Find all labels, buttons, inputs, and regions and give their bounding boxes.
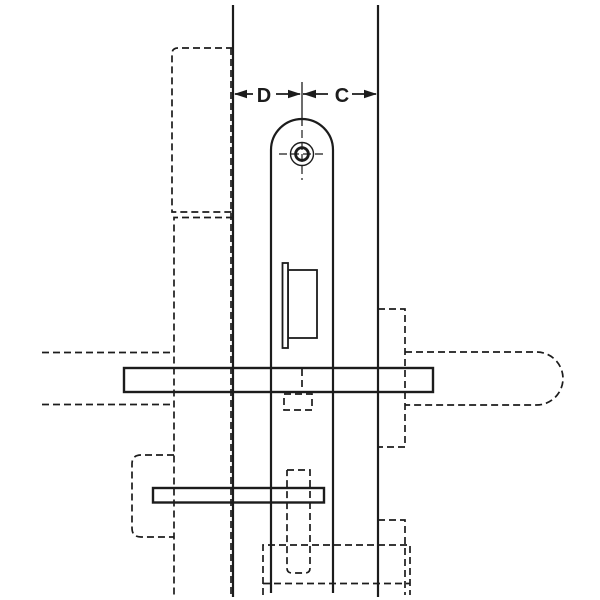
- arrow-right-icon: [364, 90, 377, 98]
- strike-box-right: [378, 309, 405, 447]
- lock-case-bottom: [263, 545, 410, 595]
- drawing-svg: D C: [0, 0, 600, 600]
- dimension-label-d: D: [257, 85, 271, 107]
- latch-bolt-plate: [283, 263, 289, 348]
- hinge-housing-upper: [172, 48, 233, 212]
- faceplate-outline: [271, 119, 333, 593]
- lever-right-outline: [405, 352, 563, 405]
- arrow-right-icon: [288, 90, 301, 98]
- dimension-label-c: C: [335, 85, 349, 107]
- faceplate-screw: [279, 82, 325, 180]
- lock-installation-drawing: D C: [0, 0, 600, 600]
- lower-fixing-bar: [153, 488, 324, 503]
- handle-spindle-bar: [124, 368, 433, 392]
- latch-bolt: [283, 263, 318, 348]
- arrow-left-icon: [303, 90, 316, 98]
- spindle-square: [284, 394, 312, 410]
- dimension-annotation: D C: [234, 85, 377, 107]
- follower-channel: [287, 470, 310, 573]
- mounting-plate-left: [174, 218, 233, 596]
- latch-bolt-head: [288, 270, 317, 338]
- arrow-left-icon: [234, 90, 247, 98]
- handle-bars: [124, 368, 433, 503]
